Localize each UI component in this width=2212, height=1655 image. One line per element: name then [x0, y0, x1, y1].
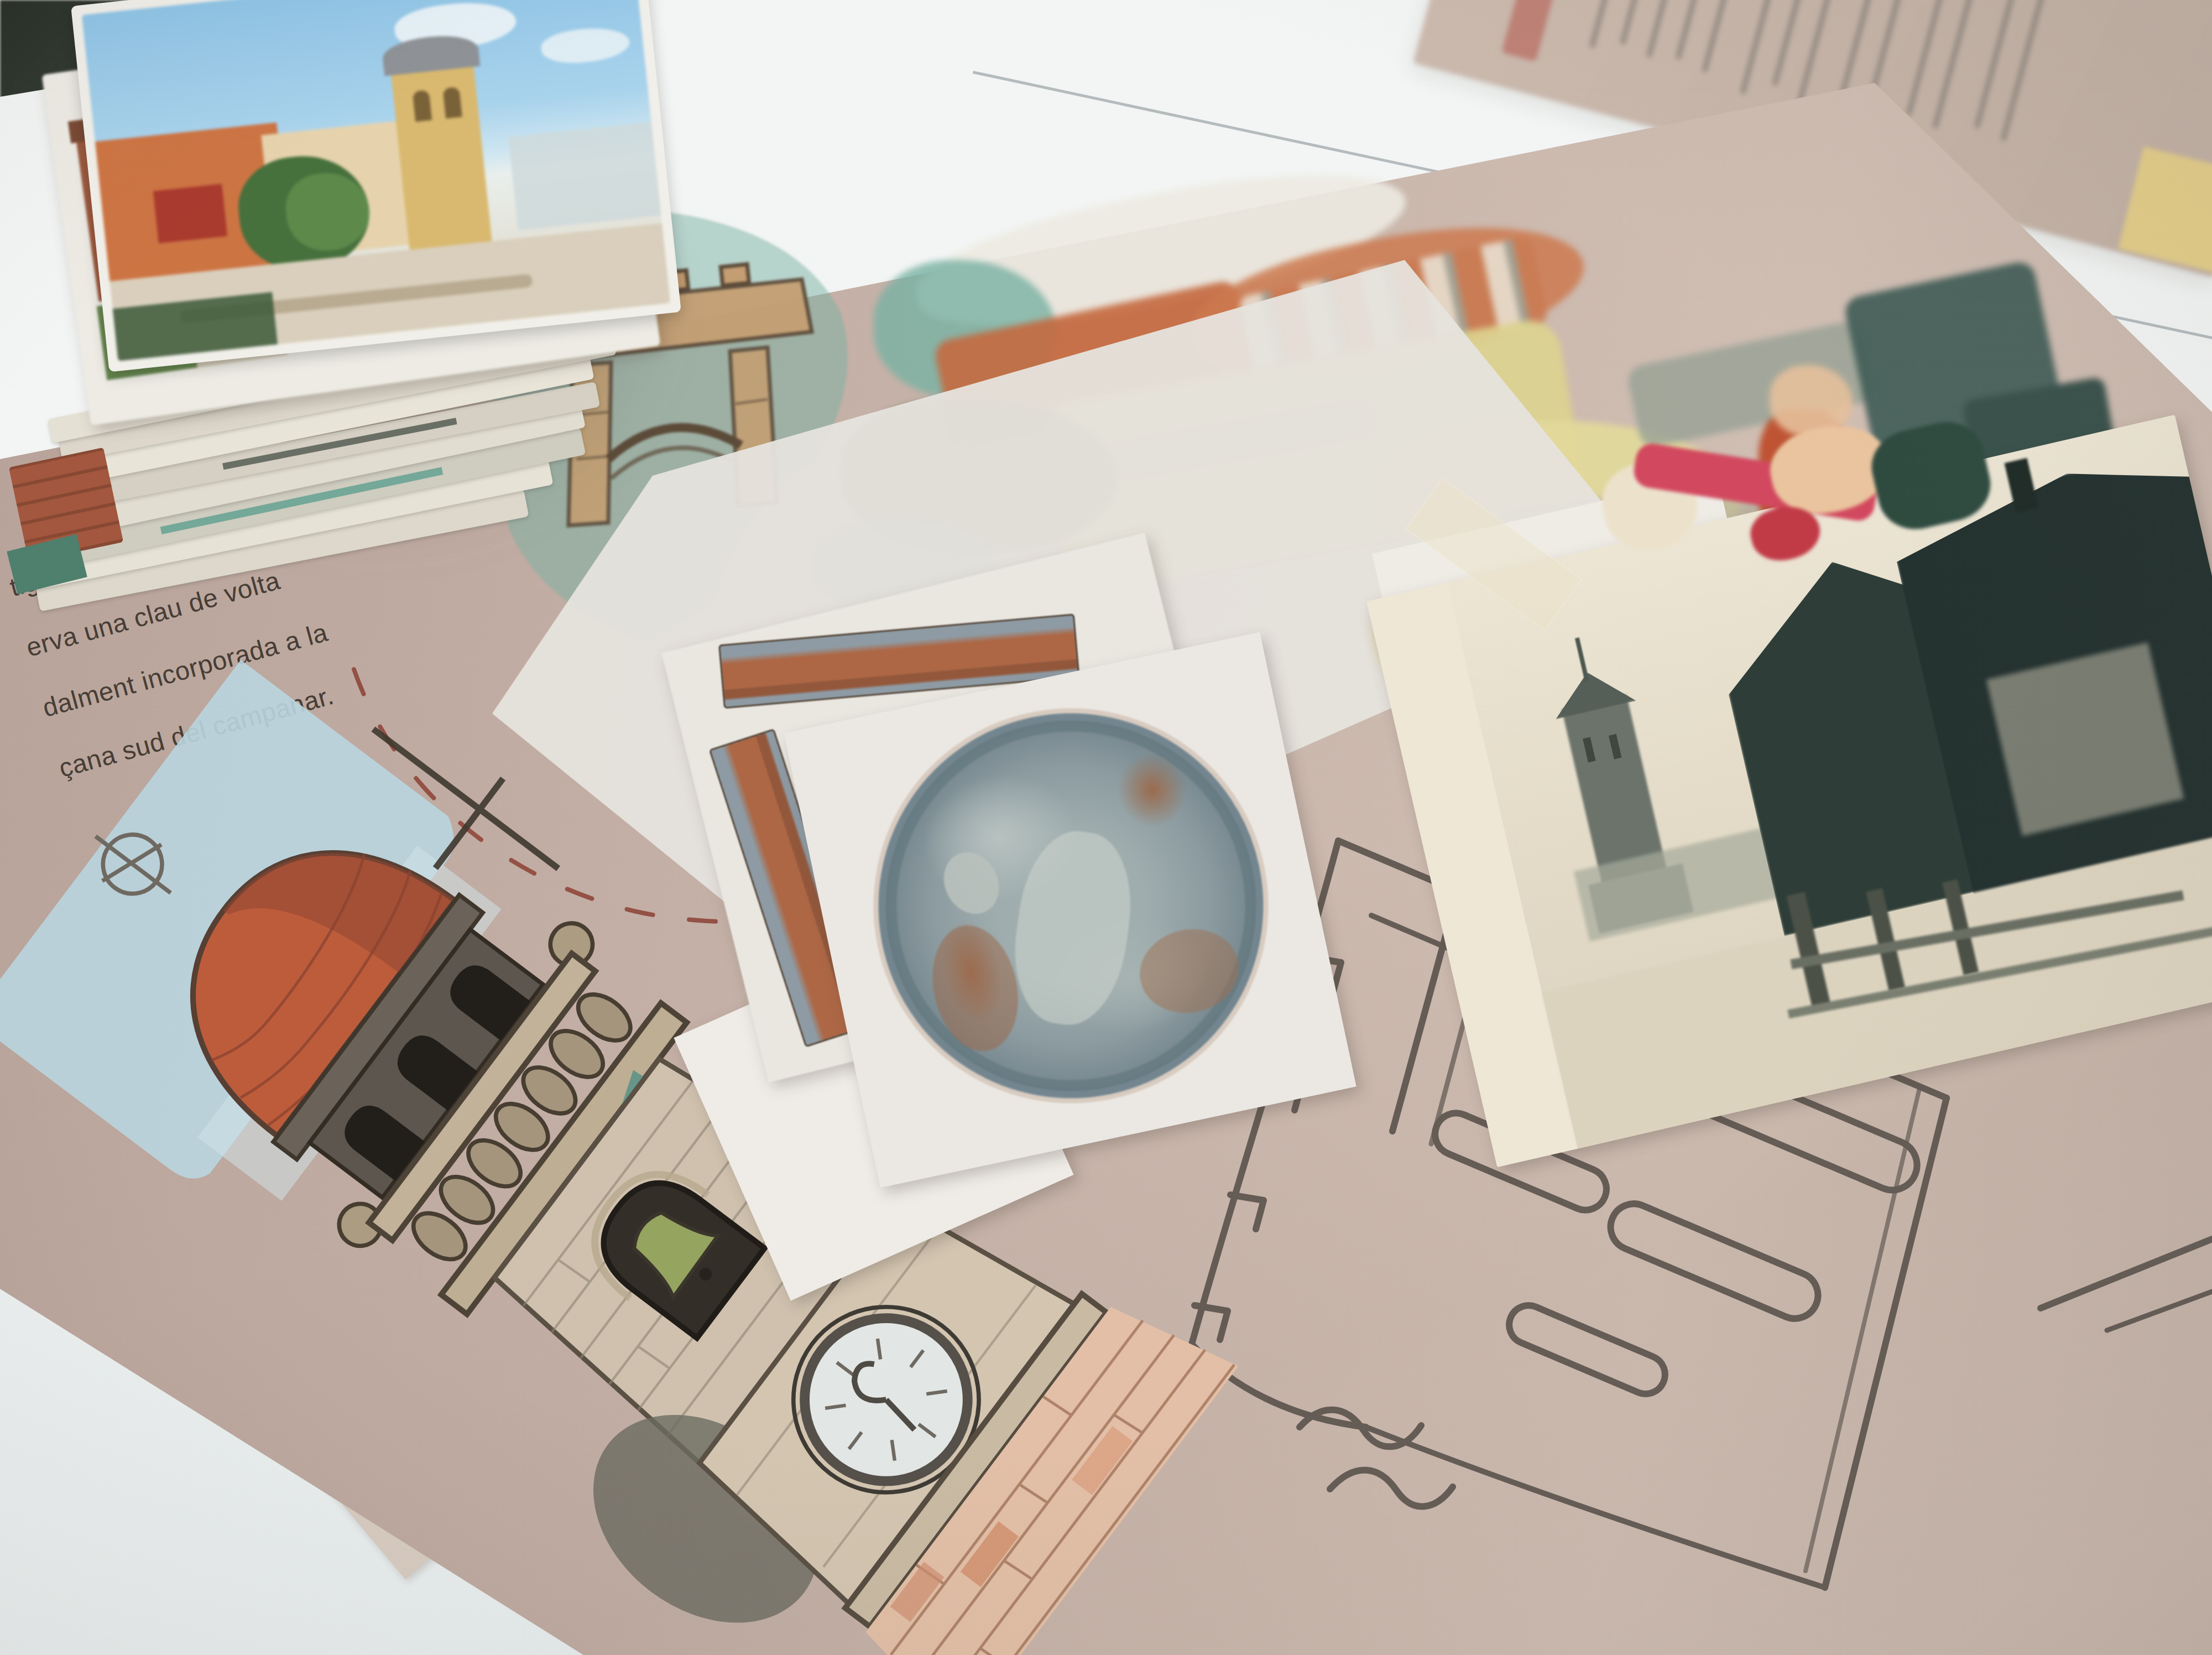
painted-red-storefront [153, 184, 227, 243]
sketch-window [1503, 1299, 1671, 1400]
sketch-base-long [1366, 1427, 1825, 1588]
photograph-of-collage-worktable: tiga església medieval se'n erva una cla… [0, 0, 2212, 1655]
sketch-exit-line [2107, 1292, 2212, 1330]
fragment-dark-green [1865, 414, 1997, 537]
sketch-exit-line [2041, 1239, 2212, 1308]
top-postcard-painting [82, 0, 670, 361]
medallion-card [784, 632, 1356, 1188]
medallion-rust-patch [921, 918, 1029, 1059]
medallion-figure-head [933, 843, 1009, 924]
sketch-flourish [1300, 1410, 1421, 1447]
painted-cloud [540, 24, 631, 66]
medallion-figure-body [1005, 824, 1141, 1031]
top-postcard [71, 0, 681, 372]
painted-distant-hill [508, 122, 661, 231]
document-title-strip [1501, 0, 1593, 61]
postcard-stack [11, 0, 708, 625]
sketch-flourish [1330, 1470, 1453, 1507]
medallion-rust-patch [1132, 920, 1246, 1022]
sketch-window [1603, 1196, 1825, 1326]
document-text-line [1620, 0, 1677, 45]
photo-tower-spire [1575, 637, 1589, 681]
keystone-medallion [843, 678, 1299, 1134]
